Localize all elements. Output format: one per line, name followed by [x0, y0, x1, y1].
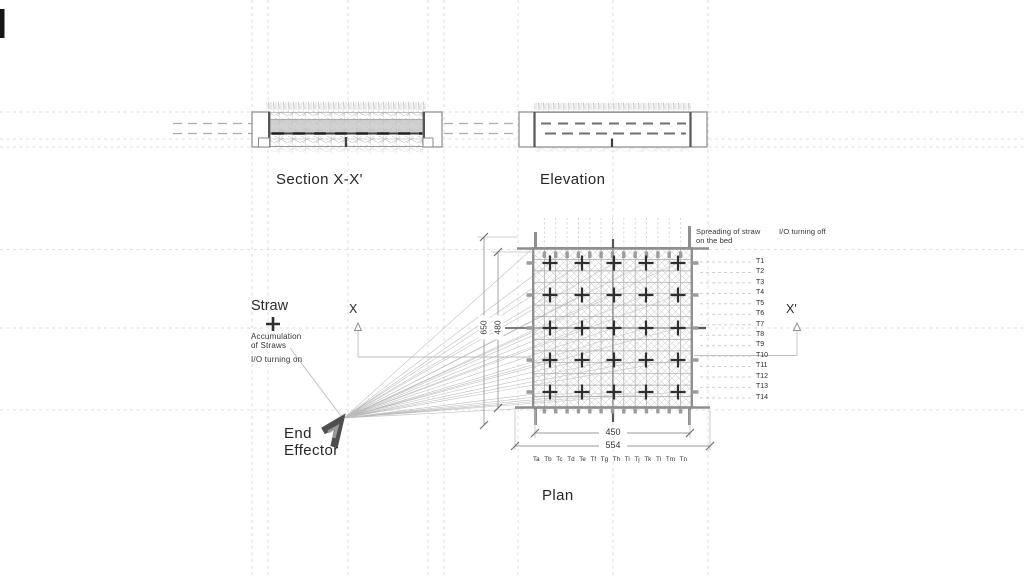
plan-col-label: Te	[579, 456, 586, 463]
spreading-note-line1: Spreading of straw	[696, 227, 760, 236]
section-title: Section X-X'	[276, 171, 363, 188]
plan-col-label: Tf	[591, 456, 597, 463]
section-marker-x: X	[349, 302, 357, 316]
plan-col-label: Tj	[634, 456, 639, 463]
plan-row-label: T7	[756, 320, 768, 330]
up-arrow-icon	[794, 323, 801, 331]
sheet-corner-mark	[0, 9, 5, 38]
section-marker-x-prime: X'	[786, 302, 797, 316]
plan-row-label: T10	[756, 351, 768, 361]
dim-outer-height: 650	[479, 316, 490, 340]
plan-col-label: Tg	[601, 456, 608, 463]
plan-col-label: Tc	[556, 456, 562, 463]
cad-drawing-sheet: Section X-X' Elevation Plan Straw Accumu…	[0, 0, 1024, 577]
plan-col-labels: Ta Tb Tc Td Te Tf Tg Th Ti Tj Tk Tl Tm T…	[533, 456, 687, 463]
elevation-title: Elevation	[540, 171, 605, 188]
io-turning-off-note: I/O turning off	[779, 227, 826, 236]
drawing-linework	[0, 0, 1024, 577]
plan-col-label: Tm	[666, 456, 675, 463]
plan-col-label: Ta	[533, 456, 540, 463]
plan-row-label: T3	[756, 278, 768, 288]
plan-row-label: T8	[756, 330, 768, 340]
dim-inner-width: 450	[599, 427, 627, 437]
plan-row-label: T4	[756, 288, 768, 298]
plan-col-label: Tl	[656, 456, 661, 463]
plan-col-label: Th	[613, 456, 620, 463]
dim-outer-width: 554	[599, 440, 627, 450]
plan-row-labels: T1 T2 T3 T4 T5 T6 T7 T8 T9 T10 T11 T12 T…	[756, 257, 768, 403]
section-drawing	[252, 101, 442, 154]
plan-col-label: Tk	[644, 456, 651, 463]
accumulation-note-line1: Accumulation	[251, 332, 301, 341]
plan-grid-drawing	[505, 218, 752, 425]
plan-row-label: T13	[756, 382, 768, 392]
plan-row-label: T11	[756, 361, 768, 371]
accumulation-note-line2: of Straws	[251, 341, 286, 350]
plan-col-label: Tn	[680, 456, 687, 463]
plan-row-label: T5	[756, 299, 768, 309]
plan-col-label: Tb	[544, 456, 551, 463]
plan-row-label: T9	[756, 340, 768, 350]
plan-row-label: T2	[756, 267, 768, 277]
end-effector-label-line2: Effector	[284, 442, 339, 459]
plan-row-label: T6	[756, 309, 768, 319]
spreading-note-line2: on the bed	[696, 236, 732, 245]
plan-row-label: T1	[756, 257, 768, 267]
dim-inner-height: 480	[493, 316, 504, 340]
plan-row-label: T14	[756, 393, 768, 403]
plan-row-label: T12	[756, 372, 768, 382]
end-effector-label-line1: End	[284, 425, 312, 442]
plan-title: Plan	[542, 487, 574, 504]
plan-col-label: Td	[567, 456, 574, 463]
io-turning-on-note: I/O turning on	[251, 355, 302, 364]
up-arrow-icon	[355, 323, 362, 331]
plan-col-label: Ti	[625, 456, 630, 463]
elevation-drawing	[519, 103, 707, 153]
construction-grid	[0, 0, 1024, 577]
straw-label: Straw	[251, 298, 288, 314]
